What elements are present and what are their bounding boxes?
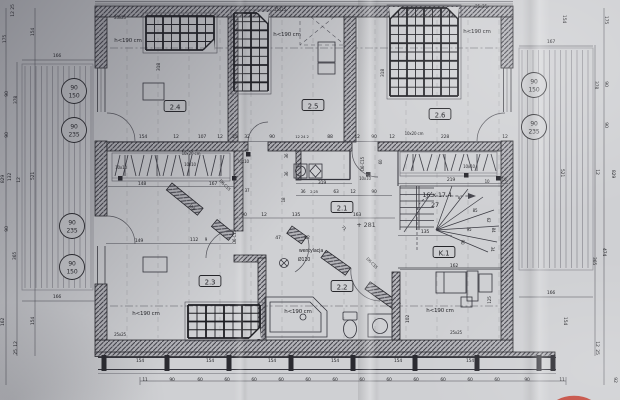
dimension-label: 12 (502, 134, 508, 140)
dimension-label: 162 (0, 318, 6, 327)
dimension-label: 90 (169, 377, 175, 383)
dimension-label: 60 (467, 377, 473, 383)
dimension-label: 90 (603, 122, 609, 128)
dimension-label: 112 (190, 237, 199, 243)
dimension-label: 25 (10, 4, 16, 10)
exterior-wall-left (95, 17, 107, 68)
dimension-label: 154 (562, 317, 568, 326)
dimension-label: 60 (224, 377, 230, 383)
dimension-label: 12 24 2 (295, 134, 309, 139)
dimension-label: 90 (371, 189, 377, 195)
skylight-size-label: 25x25 (274, 7, 286, 12)
room-number: 2.2 (337, 284, 348, 292)
dimension-label: 90 (4, 91, 10, 97)
dimension-label: 365 (12, 252, 18, 261)
room-label: 2.4 (164, 101, 186, 112)
dimension-label: 84 (491, 228, 496, 233)
window-size-marker: 90235 (60, 214, 85, 239)
room-number: 2.6 (435, 112, 446, 120)
window-size-marker: 90235 (522, 115, 547, 140)
corridor-wall (268, 142, 352, 151)
post-size-label: 10x10 (115, 165, 127, 170)
window-height: 235 (68, 132, 79, 139)
dimension-label: 90 (4, 132, 10, 138)
partition-wall (344, 17, 356, 142)
railing-dim-label: 154 (268, 358, 276, 364)
dimension-label: 32 (244, 134, 250, 140)
dimension-label: 154 (139, 134, 148, 140)
room-number: 2.1 (337, 205, 348, 213)
dimension-label: 88 (327, 134, 333, 140)
dimension-label: 90 (460, 240, 465, 245)
vent-size-label: Ø110 (298, 256, 310, 263)
dimension-label: 12 (16, 177, 22, 183)
dimension-label: 378 (13, 96, 19, 105)
window-width: 90 (530, 79, 538, 86)
dimension-label: 167 (547, 39, 556, 45)
beam-size-label: 10x20 cm (405, 131, 424, 136)
dimension-label: 365 (591, 257, 597, 266)
skylight-size-label: 25x25 (114, 332, 126, 337)
skylight-grid (143, 13, 217, 53)
balustrade-post (289, 355, 294, 371)
dimension-label: 60 (332, 377, 338, 383)
exterior-wall-right (501, 141, 513, 340)
dimension-label: 154 (561, 15, 567, 24)
height-note: h<190 cm (114, 38, 142, 44)
dimension-label: 228 (441, 134, 450, 140)
room-label: 2.6 (429, 109, 451, 120)
railing-dim-label: 154 (206, 358, 214, 364)
dimension-label: 92 (612, 377, 618, 383)
skylight-size-label: 25x25 (450, 330, 462, 335)
dimension-label: 85 (473, 208, 478, 213)
level-mark: + 281 (356, 221, 375, 229)
balustrade-post (165, 355, 170, 371)
dimension-label: 90 (4, 226, 10, 232)
height-note: h<190 cm (426, 308, 454, 314)
window-height: 235 (66, 228, 77, 235)
dimension-label: 318 (156, 63, 162, 72)
height-note: h<190 cm (132, 311, 160, 317)
dimension-label: 60 (494, 377, 500, 383)
dimension-label: 318 (380, 69, 386, 78)
dimension-label: 12 (13, 341, 19, 347)
window-height: 235 (528, 129, 539, 136)
exterior-wall-left (95, 284, 107, 340)
dimension-label: 36 (284, 171, 289, 176)
dimension-label: 10 (485, 179, 490, 184)
dimension-label: 163 (353, 212, 362, 218)
skylight-grid (387, 5, 461, 99)
height-note: h<190 cm (273, 32, 301, 38)
dimension-label: 60 (413, 377, 419, 383)
stair-riser-note: 16 x 17.4 (422, 191, 451, 199)
exterior-wall-left (95, 141, 107, 216)
dimension-label: 90 (269, 134, 275, 140)
dimension-label: 10 (502, 177, 507, 182)
dimension-label: 90 (371, 134, 377, 140)
balustrade-post (227, 355, 232, 371)
dimension-label: 60 (440, 377, 446, 383)
window-width: 90 (68, 261, 76, 268)
dimension-label: 829 (610, 170, 616, 179)
railing-dim-label: 154 (466, 358, 474, 364)
room-number: 2.4 (170, 104, 181, 112)
room-label: 2.3 (199, 276, 221, 287)
dimension-label: 829 (0, 175, 6, 184)
dimension-label: 62 (486, 218, 491, 223)
dimension-label: 60 (197, 377, 203, 383)
dimension-label: 148 (138, 181, 147, 187)
dimension-label: 95 (467, 227, 472, 232)
room-number: 2.5 (308, 103, 319, 111)
dimension-label: 47 (275, 235, 281, 241)
skylight-size-label: 25x25 (475, 4, 487, 9)
dimension-label: 25 (13, 349, 19, 355)
dimension-label: 12 (594, 169, 600, 175)
floor-plan-photo: 901509023590235901509015090235 2.42.52.6… (0, 0, 620, 400)
balustrade-post (413, 355, 418, 371)
vent-label: wentylacja (299, 248, 324, 254)
dimension-label: 90 (524, 377, 530, 383)
balustrade-post (351, 355, 356, 371)
dimension-label: 125 (487, 296, 492, 304)
window-width: 90 (70, 85, 78, 92)
dimension-label: 60 (386, 377, 392, 383)
door-type-label: D6-C15 (360, 156, 365, 171)
balustrade-post (102, 355, 107, 371)
dimension-label: 82 (304, 235, 310, 241)
dimension-label: 63 (333, 189, 339, 195)
dimension-label: 11 (559, 377, 565, 383)
dimension-label: 149 (135, 238, 144, 244)
dimension-label: 37 (245, 188, 250, 193)
dimension-label: 60 (305, 377, 311, 383)
window-height: 150 (528, 87, 539, 94)
dimension-label: 521 (30, 172, 36, 181)
dimension-label: 12 (354, 134, 360, 140)
dimension-label: 135 (421, 229, 430, 235)
corridor-wall (107, 142, 248, 151)
dimension-label: 60 (278, 377, 284, 383)
dimension-label: 378 (593, 81, 599, 90)
dimension-label: 12 (594, 341, 600, 347)
dimension-label: 219 (447, 177, 456, 183)
room-number: 2.3 (205, 279, 216, 287)
dimension-label: 12 (173, 134, 179, 140)
dimension-label: 166 (547, 290, 556, 296)
dimension-label: 102 (405, 315, 411, 324)
dimension-label: 25 (594, 349, 600, 355)
dimension-label: 167 (209, 181, 218, 187)
dimension-label: 36 (284, 153, 289, 158)
window-width: 90 (70, 124, 78, 131)
height-note: h<190 cm (284, 309, 312, 315)
dimension-label: 166 (53, 294, 62, 300)
dimension-label: 135 (292, 212, 301, 218)
window-size-marker: 90150 (60, 255, 85, 280)
post-size-label: 10x10 (184, 162, 196, 167)
room-label: 2.1 (331, 202, 353, 213)
dimension-label: 90 (241, 212, 247, 218)
dimension-label: 166 (53, 53, 62, 59)
dimension-label: 11 (142, 377, 148, 383)
post-size-label: 10x10 (463, 164, 475, 169)
window-width: 90 (530, 121, 538, 128)
room-label: K.1 (433, 247, 455, 258)
dimension-label: 12 (10, 11, 16, 17)
dimension-label: 12 (389, 134, 395, 140)
window-size-marker: 90235 (62, 118, 87, 143)
height-note: h<190 cm (463, 29, 491, 35)
dimension-label: 60 (378, 159, 383, 164)
railing-dim-label: 154 (331, 358, 339, 364)
dimension-label: 18 (281, 197, 286, 202)
floor-plan-drawing: 901509023590235901509015090235 2.42.52.6… (0, 0, 620, 400)
post-size-label: 10x10 (359, 176, 371, 181)
post-size-label: 10x10 (237, 159, 249, 164)
dimension-label: 34 (490, 247, 495, 252)
room-label: 2.2 (331, 281, 353, 292)
balustrade-post (537, 355, 542, 371)
dimension-label: 90 (603, 81, 609, 87)
beam-size-label: 10x20 cm (182, 151, 201, 156)
window-width: 90 (68, 220, 76, 227)
dimension-label: 12 (350, 189, 356, 195)
dimension-label: 154 (30, 28, 36, 37)
partition-wall (392, 272, 400, 340)
dimension-label: 162 (450, 263, 459, 269)
skylight-grid (185, 302, 263, 341)
dimension-label: 319 (318, 180, 327, 186)
dimension-label: 132 (7, 173, 13, 182)
dimension-label: 175 (603, 16, 609, 25)
window-size-marker: 90150 (522, 73, 547, 98)
window-height: 150 (66, 269, 77, 276)
door-type-label: D6-C15 (232, 229, 237, 244)
dimension-label: 2 25 (310, 189, 319, 194)
dimension-label: 521 (559, 169, 565, 178)
corridor-wall (378, 142, 501, 151)
exterior-wall-bottom (95, 340, 513, 353)
room-number: K.1 (439, 250, 450, 258)
railing-dim-label: 154 (394, 358, 402, 364)
dimension-label: 474 (601, 248, 607, 257)
terrace-footing (95, 352, 555, 357)
room-label: 2.5 (302, 100, 324, 111)
dimension-label: 175 (2, 35, 8, 44)
dimension-label: 60 (251, 377, 257, 383)
exterior-wall-right (501, 17, 513, 68)
dimension-label: 60 (359, 377, 365, 383)
balustrade-post (475, 355, 480, 371)
dimension-label: 36 (301, 189, 306, 194)
skylight-size-label: 25x25 (114, 15, 126, 20)
dimension-label: 12 (261, 212, 267, 218)
window-size-marker: 90150 (62, 79, 87, 104)
dimension-label: 12 (217, 134, 223, 140)
window-height: 150 (68, 93, 79, 100)
stair-tread-note: 27 (431, 201, 439, 209)
dimension-label: 154 (30, 317, 36, 326)
dimension-label: 107 (198, 134, 207, 140)
railing-dim-label: 154 (136, 358, 144, 364)
balustrade-post (551, 355, 556, 371)
partition-wall (228, 17, 238, 142)
dimension-label: 25 (232, 134, 238, 140)
